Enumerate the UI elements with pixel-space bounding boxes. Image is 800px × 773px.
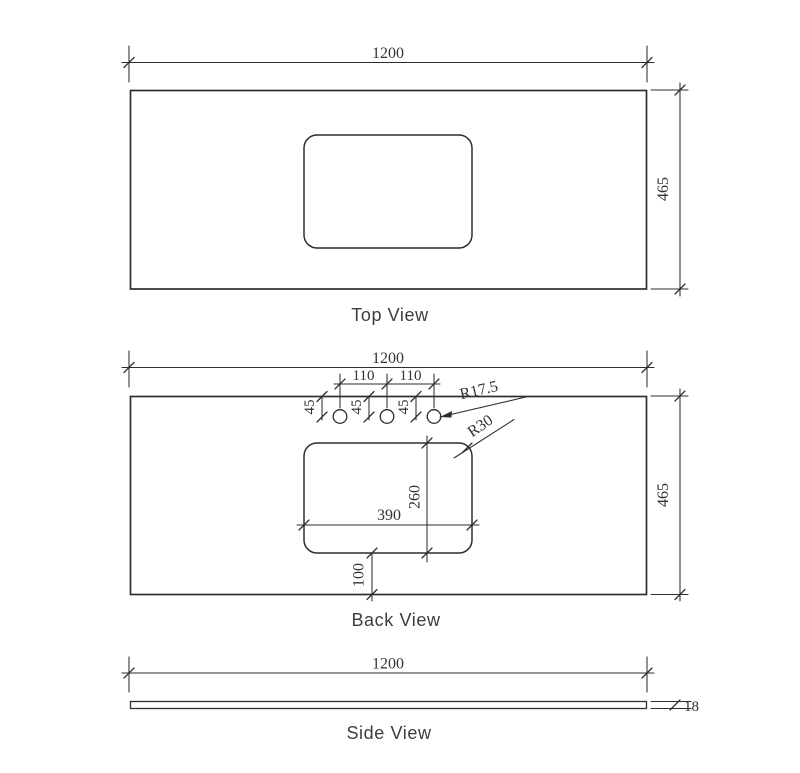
dim-cutout-depth-value: 260 bbox=[407, 485, 424, 509]
view-label: Side View bbox=[346, 723, 432, 743]
side-view: 120018Side View bbox=[122, 656, 699, 744]
tap-hole bbox=[333, 410, 347, 424]
dim-width-value: 1200 bbox=[372, 45, 404, 62]
dim-front-offset-value: 100 bbox=[351, 563, 368, 587]
dim-hole-offset-value: 45 bbox=[302, 400, 318, 415]
slab-outline bbox=[131, 91, 647, 290]
view-label: Top View bbox=[351, 305, 429, 325]
dim-depth-value: 465 bbox=[655, 483, 672, 507]
dim-width-value: 1200 bbox=[372, 656, 404, 673]
dim-depth-value: 465 bbox=[655, 177, 672, 201]
technical-drawing: 1200465Top View1200110110454545R17.5R302… bbox=[0, 0, 800, 773]
tap-hole bbox=[427, 410, 441, 424]
top-view: 1200465Top View bbox=[122, 45, 688, 325]
dim-width-value: 1200 bbox=[372, 350, 404, 367]
leader-arrowhead bbox=[439, 411, 453, 420]
dim-hole-offset-value: 45 bbox=[396, 400, 412, 415]
dim-hole-spacing-value: 110 bbox=[400, 368, 422, 384]
back-view: 1200110110454545R17.5R30260390100465Back… bbox=[122, 350, 688, 630]
slab-profile-outline bbox=[131, 702, 647, 709]
dim-hole-spacing-value: 110 bbox=[353, 368, 375, 384]
dim-hole-offset-value: 45 bbox=[349, 400, 365, 415]
dim-hole-radius-value: R17.5 bbox=[458, 378, 500, 403]
basin-cutout-outline bbox=[304, 135, 472, 248]
dim-corner-radius-value: R30 bbox=[465, 412, 497, 441]
view-label: Back View bbox=[351, 610, 441, 630]
basin-cutout-outline bbox=[304, 443, 472, 553]
drawing-canvas: 1200465Top View1200110110454545R17.5R302… bbox=[0, 0, 800, 773]
dim-cutout-width-value: 390 bbox=[377, 507, 401, 524]
dim-thickness-value: 18 bbox=[684, 699, 699, 715]
slab-outline bbox=[131, 397, 647, 595]
tap-hole bbox=[380, 410, 394, 424]
